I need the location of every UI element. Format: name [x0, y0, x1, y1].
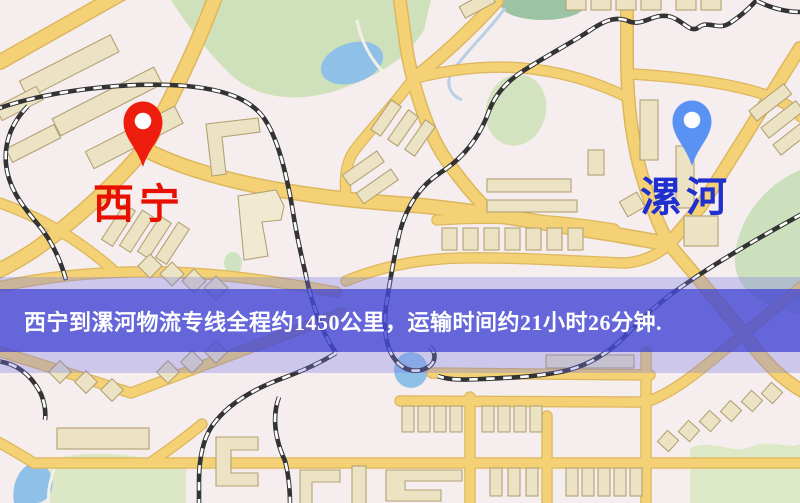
origin-city-label: 西宁 [93, 184, 185, 225]
route-banner-text: 西宁到漯河物流专线全程约1450公里，运输时间约21小时26分钟. [0, 305, 662, 337]
map-background [0, 0, 800, 503]
origin-pin-icon[interactable] [120, 97, 166, 169]
map-canvas[interactable]: 西宁到漯河物流专线全程约1450公里，运输时间约21小时26分钟. 西宁 漯河 [0, 0, 800, 503]
destination-city-label: 漯河 [640, 177, 732, 218]
destination-pin-icon[interactable] [669, 96, 715, 168]
route-banner: 西宁到漯河物流专线全程约1450公里，运输时间约21小时26分钟. [0, 289, 800, 352]
